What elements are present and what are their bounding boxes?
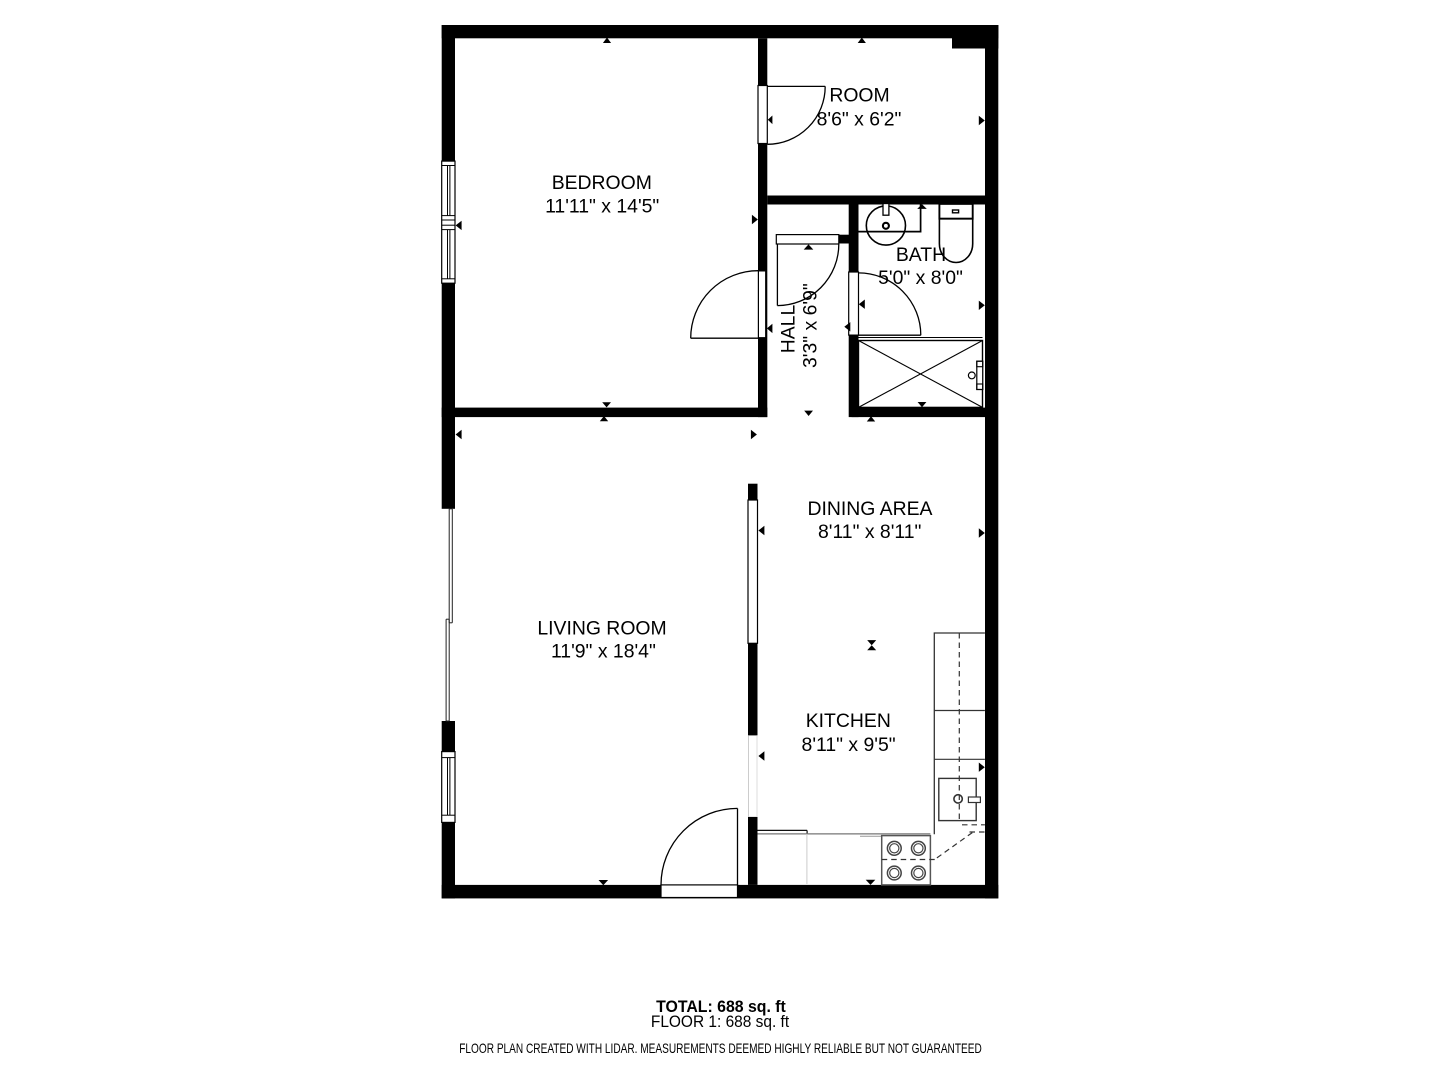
svg-text:KITCHEN: KITCHEN <box>806 710 891 732</box>
svg-text:11'11" x 14'5": 11'11" x 14'5" <box>545 196 659 218</box>
svg-text:ROOM: ROOM <box>829 85 889 107</box>
svg-text:HALL: HALL <box>778 305 800 354</box>
svg-text:BATH: BATH <box>896 244 946 266</box>
svg-text:3'3" x 6'9": 3'3" x 6'9" <box>800 283 822 368</box>
svg-text:FLOOR PLAN CREATED WITH LIDAR.: FLOOR PLAN CREATED WITH LIDAR. MEASUREME… <box>459 1041 982 1057</box>
svg-text:5'0" x 8'0": 5'0" x 8'0" <box>878 267 963 289</box>
svg-text:8'11" x 8'11": 8'11" x 8'11" <box>818 521 922 543</box>
svg-text:DINING AREA: DINING AREA <box>808 498 933 520</box>
svg-text:FLOOR 1: 688 sq. ft: FLOOR 1: 688 sq. ft <box>651 1014 790 1031</box>
svg-text:BEDROOM: BEDROOM <box>552 172 652 194</box>
svg-text:11'9" x 18'4": 11'9" x 18'4" <box>551 641 656 663</box>
svg-text:8'6" x 6'2": 8'6" x 6'2" <box>817 109 902 131</box>
svg-text:8'11" x 9'5": 8'11" x 9'5" <box>802 734 896 756</box>
svg-text:LIVING ROOM: LIVING ROOM <box>537 617 666 639</box>
